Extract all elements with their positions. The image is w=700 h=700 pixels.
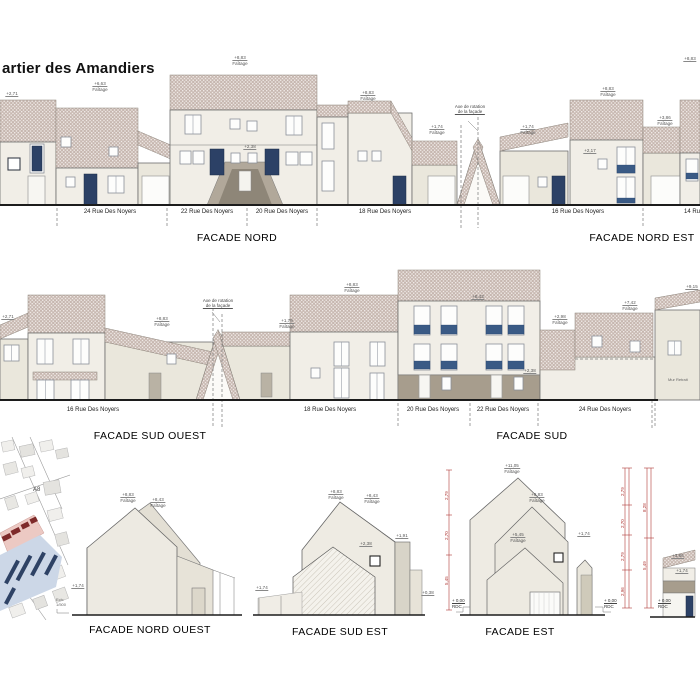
facade-title-sud-ouest: FACADE SUD OUEST — [94, 430, 207, 442]
elevation-marker: +3,86Faîtage — [657, 115, 672, 126]
elevation-marker: +2,38 — [359, 541, 372, 547]
elevation-marker: +8,43 — [471, 294, 484, 300]
address-label: 18 Rue Des Noyers — [359, 209, 411, 215]
house-22-20-nord — [170, 75, 317, 205]
elevation-marker: +2,71 — [5, 91, 18, 97]
house-24-nord — [56, 108, 138, 205]
elevation-marker: +1,79Faîtage — [279, 318, 294, 329]
elevation-marker: +7,42Faîtage — [622, 300, 637, 311]
elevation-marker: +8,83Faîtage — [328, 489, 343, 500]
address-label: 16 Rue Des Noyers — [67, 407, 119, 413]
house-18-nord — [317, 101, 412, 205]
house-20-22-sud — [398, 270, 540, 400]
dim-value: 2,79 — [444, 491, 449, 500]
facade-title-nord: FACADE NORD — [197, 232, 277, 244]
rotation-axis-note: Axe de rotation de la façade — [203, 298, 233, 309]
elevation-marker: +1,74Faîtage — [429, 124, 444, 135]
elevation-marker: +8,83Faîtage — [232, 55, 247, 66]
address-label: 22 Rue Des Noyers — [477, 407, 529, 413]
address-label: 20 Rue Des Noyers — [256, 209, 308, 215]
facade-title-nord-ouest: FACADE NORD OUEST — [89, 624, 211, 636]
facade-title-sud: FACADE SUD — [496, 430, 567, 442]
house-end-left — [0, 100, 56, 205]
elevation-marker: +2,38 — [523, 368, 536, 374]
elevation-marker: +3,86 — [671, 553, 684, 559]
map-scale-note: Ech:1/500 — [56, 598, 66, 607]
address-label: 24 Rue Des Noyers — [579, 407, 631, 413]
architectural-sheet: artier des Amandiers — [0, 0, 700, 700]
elevation-marker: +1,74 — [255, 585, 268, 591]
gable-house-nw — [87, 503, 235, 615]
dim-value: 2,79 — [620, 552, 625, 561]
elevation-marker: +0,38 — [421, 590, 434, 596]
rotation-axis-gable-nord — [457, 117, 500, 228]
dim-value: 2,96 — [620, 587, 625, 596]
elevation-marker: +1,74Faîtage — [520, 124, 535, 135]
facade-est-drawing — [435, 460, 700, 645]
elevation-marker: +2,98Faîtage — [552, 314, 567, 325]
elevation-marker: +1,74 — [577, 531, 590, 537]
site-plan-map — [0, 437, 70, 620]
elevation-marker: +2,17 — [583, 148, 596, 154]
elevation-marker: +6,63Faîtage — [92, 81, 107, 92]
facade-title-est: FACADE EST — [485, 626, 554, 638]
dim-value: 2,79 — [620, 487, 625, 496]
gable-house-se — [258, 502, 422, 615]
facade-nord-ouest-drawing — [70, 468, 250, 648]
address-label: 16 Rue Des Noyers — [552, 209, 604, 215]
elevation-marker: +8,43Faîtage — [364, 493, 379, 504]
dim-value: 2,70 — [620, 519, 625, 528]
dim-value: 5,45 — [444, 576, 449, 585]
house-16-nord — [500, 100, 643, 205]
building-right-sud — [652, 290, 700, 428]
dim-value: 5,49 — [642, 561, 647, 570]
elevation-marker: +8,83 — [683, 56, 696, 62]
building-right-partial — [650, 550, 695, 617]
address-label: 20 Rue Des Noyers — [407, 407, 459, 413]
elevation-marker: +2,38 — [243, 144, 256, 150]
rdc-note: + 0,00RDC — [604, 598, 617, 609]
elevation-marker: +8,83Faîtage — [344, 282, 359, 293]
elevation-marker: +2,71 — [1, 314, 14, 320]
elevation-marker: +8,83Faîtage — [154, 316, 169, 327]
address-label: 22 Rue Des Noyers — [181, 209, 233, 215]
address-label: 14 Ru — [684, 209, 700, 215]
elevation-marker: +11,05Faîtage — [504, 463, 520, 474]
elevation-marker: +1,74 — [675, 568, 688, 574]
address-label: 18 Rue Des Noyers — [304, 407, 356, 413]
wing-long-sud — [105, 328, 213, 400]
facade-title-sud-est: FACADE SUD EST — [292, 626, 388, 638]
elevation-marker: +8,83Faîtage — [360, 90, 375, 101]
dim-value: 2,70 — [444, 531, 449, 540]
map-zone-label: A8 — [33, 487, 40, 493]
elevation-marker: +8,83Faîtage — [120, 492, 135, 503]
retrait-note: Mur Retrait — [668, 377, 688, 382]
garage-wing-2 — [412, 141, 457, 205]
elevation-marker: +1,74 — [71, 583, 84, 589]
elevation-marker: +9,15 — [685, 284, 698, 290]
wing-left-sud — [0, 313, 28, 400]
elevation-marker: +8,43Faîtage — [150, 497, 165, 508]
facade-title-nord-est: FACADE NORD EST — [589, 232, 694, 244]
dim-value: 8,28 — [642, 503, 647, 512]
rdc-note: + 0,00RDC — [452, 598, 465, 609]
house-18-sud — [290, 295, 398, 400]
elevation-marker: +5,45Faîtage — [510, 532, 525, 543]
rdc-note: + 0,00RDC — [658, 598, 671, 609]
address-label: 24 Rue Des Noyers — [84, 209, 136, 215]
elevation-marker: +1,91 — [395, 533, 408, 539]
rotation-axis-note: Axe de rotation de la façade — [455, 104, 485, 115]
dimension-chain-right — [644, 468, 654, 608]
house-24-sud — [540, 313, 655, 400]
house-16-sud — [28, 295, 105, 400]
map-scale-bracket — [57, 609, 69, 613]
elevation-marker: +8,83Faîtage — [600, 86, 615, 97]
elevation-marker: +8,83Faîtage — [529, 492, 544, 503]
